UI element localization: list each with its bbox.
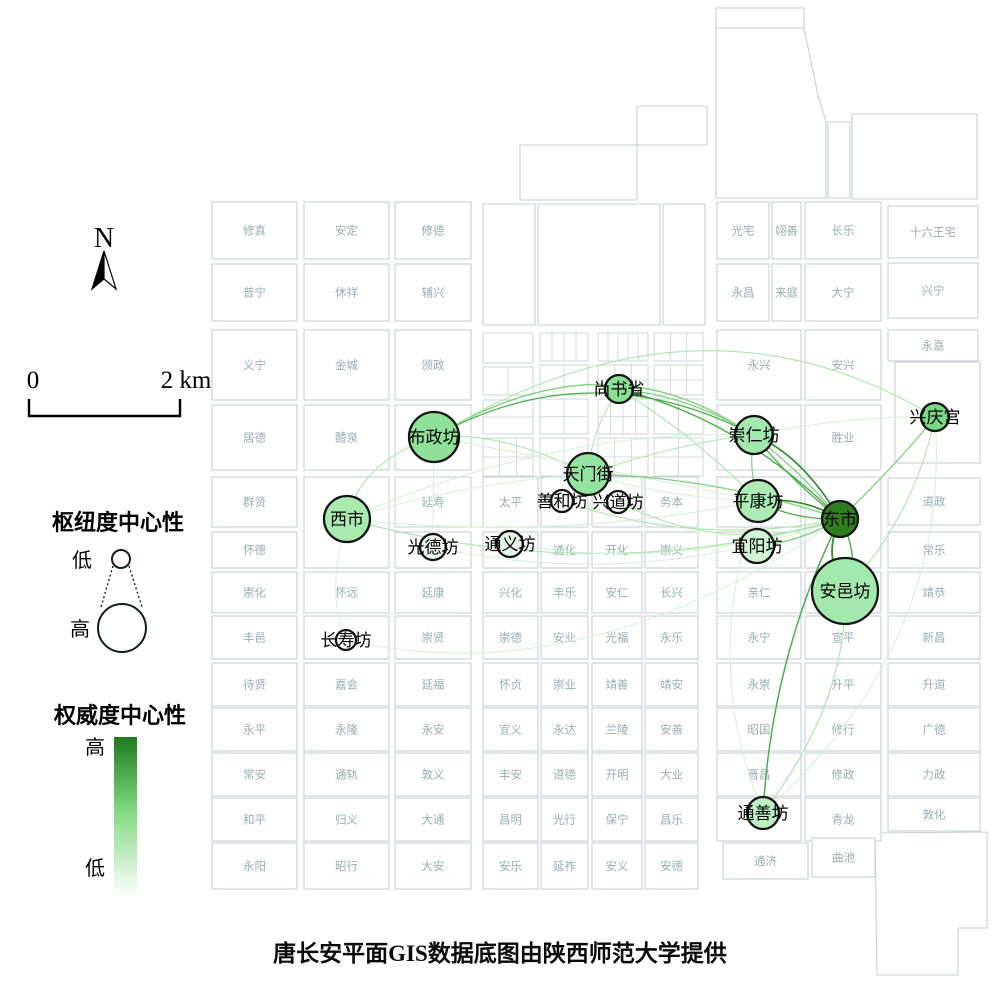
map-node-label: 尚书省 <box>594 380 645 399</box>
map-block <box>304 330 389 400</box>
map-block <box>483 708 538 751</box>
north-label: N <box>94 223 114 254</box>
map-node-label: 兴庆宫 <box>910 408 961 427</box>
legend-hub-high-label: 高 <box>70 618 90 641</box>
palace-outline <box>716 28 826 198</box>
map-block <box>483 843 538 889</box>
map-node-label: 西市 <box>330 510 364 529</box>
map-node-label: 安邑坊 <box>820 582 871 601</box>
map-block <box>645 798 698 841</box>
map-block <box>592 843 642 889</box>
palace-outline <box>852 114 977 199</box>
palace-outline <box>538 204 660 325</box>
map-block <box>395 330 471 400</box>
map-block <box>483 753 538 796</box>
map-block <box>723 843 808 879</box>
map-block <box>888 263 978 318</box>
map-block <box>304 708 389 751</box>
map-node-label: 崇仁坊 <box>729 426 780 445</box>
map-block <box>212 843 297 889</box>
map-block <box>805 663 881 706</box>
map-block <box>717 708 801 751</box>
legend-auth-high-label: 高 <box>85 736 105 759</box>
palace-outline <box>663 204 705 325</box>
map-block <box>212 798 297 841</box>
north-arrow-right-half <box>104 251 116 289</box>
legend-auth-gradient-bar <box>114 737 137 898</box>
map-node-label: 通义坊 <box>485 535 536 554</box>
map-node-label: 东市 <box>823 510 857 529</box>
legend-hub-title: 枢纽度中心性 <box>52 510 184 535</box>
map-canvas: 修真安定修德普宁休祥辅兴义宁金城颁政居德醴泉群贤延寿怀德崇化怀远延康丰邑崇贤待贤… <box>0 0 1000 987</box>
map-block <box>212 264 297 321</box>
map-block <box>212 202 297 259</box>
map-block <box>395 202 471 259</box>
map-block <box>717 572 801 613</box>
palace-outline <box>520 145 637 200</box>
map-block <box>888 532 980 568</box>
map-block <box>888 753 980 796</box>
map-block <box>212 477 297 527</box>
map-block <box>592 616 642 659</box>
palace-outline <box>828 122 850 198</box>
map-block <box>717 663 801 706</box>
map-edge <box>434 393 754 437</box>
map-block <box>304 202 389 259</box>
map-block <box>395 572 471 613</box>
map-block <box>888 708 980 751</box>
map-block <box>395 843 471 889</box>
map-block <box>717 264 769 321</box>
map-node-label: 光德坊 <box>408 538 459 557</box>
map-block <box>212 405 297 470</box>
legend-hub-small-circle <box>112 550 130 568</box>
map-block <box>395 663 471 706</box>
map-block <box>212 572 297 613</box>
map-block <box>717 202 769 259</box>
imperial-cell-group <box>483 333 533 363</box>
map-block <box>645 477 698 527</box>
map-block <box>212 330 297 400</box>
palace-outline <box>875 832 987 975</box>
map-block <box>645 616 698 659</box>
legend-hub-centrality: 枢纽度中心性 低 高 <box>52 510 184 652</box>
map-block <box>888 663 980 706</box>
map-block <box>645 708 698 751</box>
map-block <box>592 572 642 613</box>
map-block <box>805 798 881 841</box>
map-node-label: 善和坊 <box>537 492 588 511</box>
map-block <box>812 838 875 877</box>
legend-hub-cone-left <box>101 566 113 607</box>
map-block <box>888 330 978 361</box>
map-block <box>805 202 881 259</box>
map-block <box>304 753 389 796</box>
map-node-label: 天门街 <box>563 465 614 484</box>
figure-tang-changan-network: { "caption": "唐长安平面GIS数据底图由陕西师范大学提供", "n… <box>0 0 1000 987</box>
legend-hub-low-label: 低 <box>72 549 92 572</box>
north-arrow-left-half <box>92 251 104 289</box>
map-block <box>541 798 588 841</box>
map-block <box>805 708 881 751</box>
north-arrow: N <box>92 223 116 289</box>
map-block <box>772 264 801 321</box>
map-block <box>717 330 801 400</box>
map-block <box>304 663 389 706</box>
scale-bar-zero: 0 <box>27 367 40 394</box>
map-block <box>212 532 297 568</box>
map-block <box>645 663 698 706</box>
map-block <box>395 264 471 321</box>
map-block <box>395 708 471 751</box>
map-node-label: 布政坊 <box>409 428 460 447</box>
map-block <box>541 753 588 796</box>
map-node-label: 长寿坊 <box>321 631 372 650</box>
map-block <box>645 843 698 889</box>
map-block <box>592 753 642 796</box>
map-block <box>212 708 297 751</box>
map-block <box>541 572 588 613</box>
map-block <box>541 843 588 889</box>
map-block <box>304 572 389 613</box>
legend-authority-centrality: 权威度中心性 高 低 <box>53 703 186 898</box>
map-block <box>212 616 297 659</box>
map-node-label: 兴道坊 <box>593 493 644 512</box>
map-block <box>888 616 980 659</box>
map-block <box>304 843 389 889</box>
scale-bar-distance: 2 km <box>161 367 212 394</box>
figure-caption: 唐长安平面GIS数据底图由陕西师范大学提供 <box>273 940 727 966</box>
map-block <box>592 663 642 706</box>
map-block <box>645 753 698 796</box>
map-block <box>541 663 588 706</box>
map-block <box>592 708 642 751</box>
map-node-label: 通善坊 <box>738 804 789 823</box>
map-block <box>395 798 471 841</box>
map-block <box>805 405 881 470</box>
palace-outline <box>483 204 535 325</box>
map-block <box>888 572 980 613</box>
map-node-label: 宜阳坊 <box>732 537 783 556</box>
legend-auth-title: 权威度中心性 <box>53 703 186 728</box>
map-block <box>541 708 588 751</box>
map-node-label: 平康坊 <box>733 492 784 511</box>
map-block <box>304 405 389 470</box>
map-block <box>772 202 801 259</box>
palace-outline <box>716 8 804 28</box>
map-block <box>395 753 471 796</box>
map-block <box>483 663 538 706</box>
scale-bar: 0 2 km <box>27 367 212 417</box>
map-block <box>212 753 297 796</box>
map-block <box>483 798 538 841</box>
map-block <box>645 572 698 613</box>
map-block <box>805 264 881 321</box>
legend-hub-large-circle <box>98 604 146 652</box>
legend-hub-cone-right <box>129 566 142 607</box>
map-block <box>304 798 389 841</box>
map-block <box>541 616 588 659</box>
map-block <box>592 798 642 841</box>
palace-outline <box>637 106 707 145</box>
map-block <box>212 663 297 706</box>
map-block <box>304 264 389 321</box>
scale-bar-line <box>28 399 181 417</box>
map-block <box>888 798 980 831</box>
legend-auth-low-label: 低 <box>85 857 105 880</box>
map-block <box>888 206 978 258</box>
map-block <box>483 572 538 613</box>
imperial-cell-group <box>654 333 703 361</box>
